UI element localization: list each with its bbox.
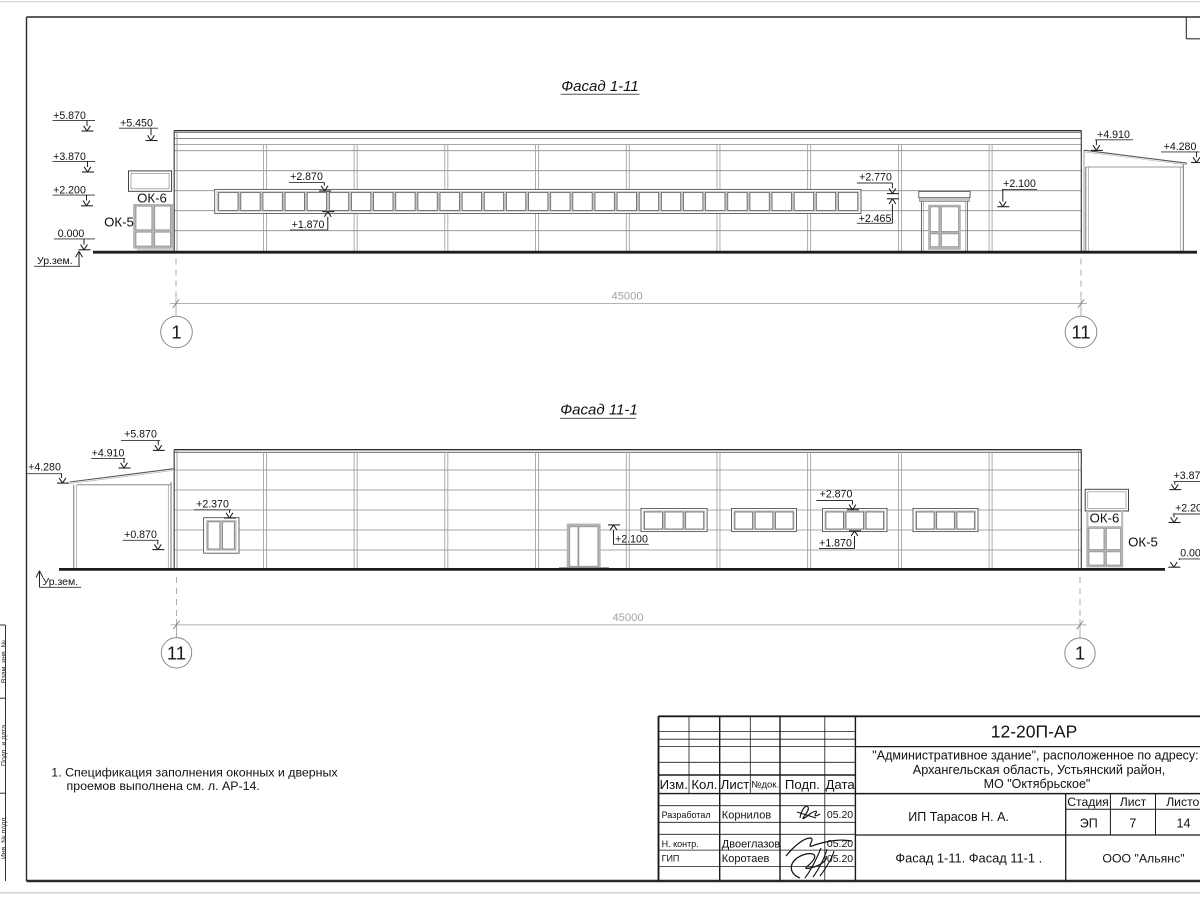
svg-text:+4.280: +4.280 xyxy=(1164,141,1197,153)
svg-text:Коротаев: Коротаев xyxy=(722,853,770,865)
svg-text:+2.370: +2.370 xyxy=(196,499,229,511)
svg-text:45000: 45000 xyxy=(611,291,642,303)
svg-text:1: 1 xyxy=(1075,643,1085,664)
svg-text:Инв. № подл.: Инв. № подл. xyxy=(1,816,8,860)
svg-text:+4.280: +4.280 xyxy=(28,462,61,474)
svg-text:Двоеглазов: Двоеглазов xyxy=(722,838,781,850)
svg-text:Взам. инв. №: Взам. инв. № xyxy=(1,640,8,683)
svg-text:12-20П-АР: 12-20П-АР xyxy=(991,722,1078,742)
svg-text:ОК-5: ОК-5 xyxy=(1128,534,1158,549)
svg-text:ИП Тарасов Н. А.: ИП Тарасов Н. А. xyxy=(908,810,1009,824)
svg-text:Кол.: Кол. xyxy=(691,777,717,792)
svg-text:+4.910: +4.910 xyxy=(1097,129,1130,141)
svg-text:+2.20: +2.20 xyxy=(1175,503,1200,515)
svg-text:Фасад 1-11: Фасад 1-11 xyxy=(561,78,638,95)
svg-text:11: 11 xyxy=(1071,322,1090,343)
svg-text:+3.87: +3.87 xyxy=(1174,470,1200,482)
svg-text:7: 7 xyxy=(1129,817,1136,831)
svg-text:ООО "Альянс": ООО "Альянс" xyxy=(1102,851,1184,865)
svg-text:№док.: №док. xyxy=(751,780,779,791)
svg-text:1: 1 xyxy=(171,322,181,343)
svg-text:Изм.: Изм. xyxy=(660,777,688,792)
svg-text:+2.870: +2.870 xyxy=(290,171,323,183)
svg-text:0.00: 0.00 xyxy=(1180,548,1200,560)
svg-text:45000: 45000 xyxy=(612,612,643,624)
svg-text:11: 11 xyxy=(167,642,186,663)
svg-text:Ур.зем.: Ур.зем. xyxy=(43,576,79,588)
svg-text:+2.100: +2.100 xyxy=(1003,178,1036,190)
svg-text:проемов выполнена см. л. АР-14: проемов выполнена см. л. АР-14. xyxy=(67,779,260,793)
svg-text:1. Спецификация заполнения око: 1. Спецификация заполнения оконных и две… xyxy=(51,765,338,779)
svg-text:Стадия: Стадия xyxy=(1067,795,1109,809)
svg-text:"Административное здание", рас: "Административное здание", расположенное… xyxy=(872,748,1198,762)
svg-text:Лист: Лист xyxy=(721,777,750,792)
svg-text:Корнилов: Корнилов xyxy=(722,809,772,821)
svg-text:+2.200: +2.200 xyxy=(53,184,86,196)
svg-text:0.000: 0.000 xyxy=(58,228,85,240)
svg-text:Подп.: Подп. xyxy=(785,777,820,792)
svg-text:+4.910: +4.910 xyxy=(92,447,125,459)
svg-text:Фасад 1-11. Фасад 11-1 .: Фасад 1-11. Фасад 11-1 . xyxy=(895,851,1042,866)
svg-text:+2.770: +2.770 xyxy=(859,172,892,184)
svg-text:Подп. и дата: Подп. и дата xyxy=(1,725,8,766)
svg-text:Листов: Листов xyxy=(1166,795,1200,809)
svg-text:ЭП: ЭП xyxy=(1080,817,1098,831)
svg-text:+2.870: +2.870 xyxy=(820,489,853,501)
svg-text:Ур.зем.: Ур.зем. xyxy=(37,255,73,267)
svg-text:+1.870: +1.870 xyxy=(292,219,325,231)
svg-text:ОК-6: ОК-6 xyxy=(137,191,167,206)
svg-text:Разработал: Разработал xyxy=(662,810,711,820)
svg-text:ГИП: ГИП xyxy=(662,854,680,864)
svg-text:+0.870: +0.870 xyxy=(124,529,157,541)
svg-text:Фасад 11-1: Фасад 11-1 xyxy=(560,401,637,418)
svg-text:14: 14 xyxy=(1177,817,1191,831)
svg-text:ОК-5: ОК-5 xyxy=(104,215,134,230)
svg-text:Лист: Лист xyxy=(1120,795,1147,809)
svg-text:Н. контр.: Н. контр. xyxy=(662,839,699,849)
svg-text:МО "Октябрьское": МО "Октябрьское" xyxy=(984,777,1091,791)
svg-text:Архангельская область, Устьянс: Архангельская область, Устьянский район, xyxy=(913,763,1166,777)
svg-text:+1.870: +1.870 xyxy=(819,537,852,549)
svg-text:05.20: 05.20 xyxy=(827,809,853,821)
svg-text:ОК-6: ОК-6 xyxy=(1090,511,1120,526)
svg-text:+2.100: +2.100 xyxy=(615,533,648,545)
svg-text:Дата: Дата xyxy=(825,777,855,792)
svg-text:+5.870: +5.870 xyxy=(124,428,157,440)
